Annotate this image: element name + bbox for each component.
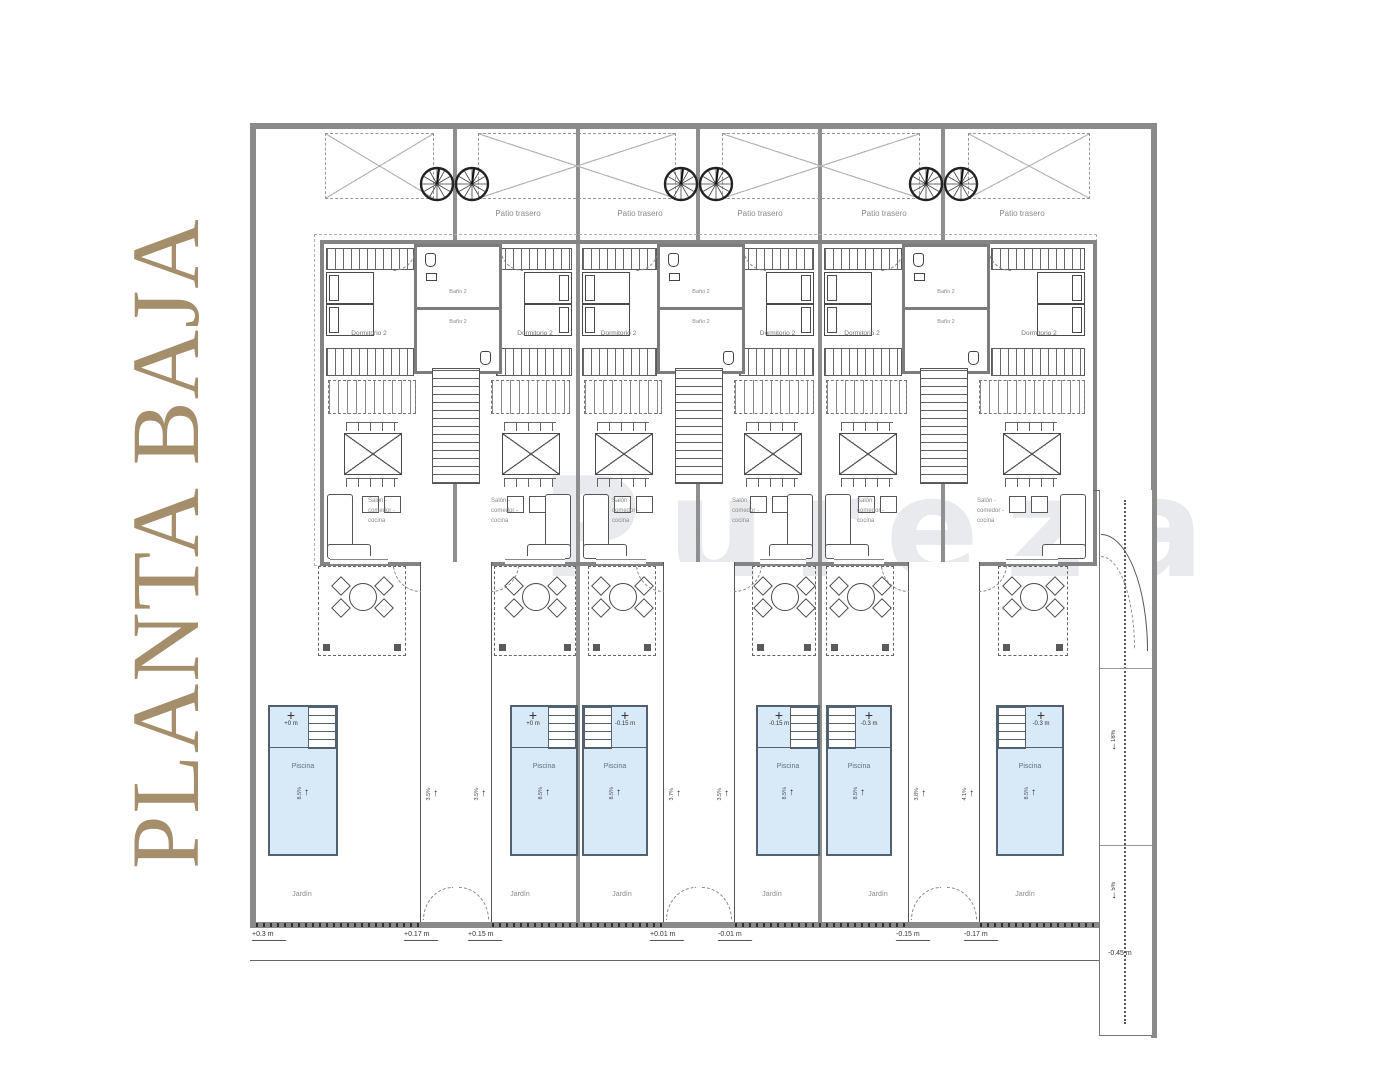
staircase bbox=[920, 368, 968, 484]
level-annotation: -0.15 m bbox=[896, 931, 930, 941]
arrow-up-icon: ↑ bbox=[789, 788, 794, 798]
spiral-stair-icon bbox=[943, 166, 979, 202]
slope-value: 3.8% bbox=[914, 788, 920, 801]
dining-area bbox=[826, 420, 907, 488]
room-label-garden: Jardín bbox=[742, 891, 802, 898]
terrace-chair bbox=[753, 598, 773, 618]
slope-label: 3.5% ↑ bbox=[474, 788, 486, 801]
dining-area bbox=[977, 420, 1085, 488]
pool-level-mark: + -0.3 m bbox=[1024, 709, 1058, 727]
dining-table bbox=[502, 433, 560, 475]
sink-icon bbox=[914, 273, 925, 281]
terrace-table bbox=[609, 583, 637, 611]
toilet-icon bbox=[425, 253, 436, 267]
slope-value: 3.5% bbox=[474, 788, 480, 801]
arrow-up-icon: ↑ bbox=[433, 789, 438, 799]
lightwell-x bbox=[325, 133, 434, 199]
pergola-post bbox=[593, 644, 600, 651]
pergola-post bbox=[499, 644, 506, 651]
terrace-chair bbox=[331, 598, 351, 618]
level-cross-icon: + bbox=[516, 709, 550, 721]
level-cross-icon: + bbox=[852, 709, 886, 721]
pool-elevation: -0.3 m bbox=[852, 721, 886, 727]
pool-elevation: -0.15 m bbox=[608, 721, 642, 727]
spiral-stair-icon bbox=[663, 166, 699, 202]
room-label-patio: Patio trasero bbox=[844, 209, 924, 218]
room-label-garden: Jardín bbox=[995, 891, 1055, 898]
arrow-down-icon: ↓ bbox=[1112, 742, 1117, 751]
room-label-patio: Patio trasero bbox=[720, 209, 800, 218]
chair-row bbox=[597, 422, 649, 431]
arrow-up-icon: ↑ bbox=[304, 788, 309, 798]
room-label-living: Salón - comedor - cocina bbox=[612, 496, 666, 527]
slider-opening bbox=[834, 556, 884, 564]
level-value: +0.01 m bbox=[650, 931, 676, 938]
slope-value: 8.5% bbox=[538, 787, 544, 800]
fence-hatch bbox=[492, 923, 663, 927]
chair-row bbox=[746, 478, 798, 487]
toilet-icon bbox=[913, 253, 924, 267]
chair-row bbox=[504, 478, 556, 487]
level-cross-icon: + bbox=[762, 709, 796, 721]
spiral-stair-icon bbox=[454, 166, 490, 202]
chair-row bbox=[504, 422, 556, 431]
room-label-patio: Patio trasero bbox=[478, 209, 558, 218]
slope-value: 8.5% bbox=[1024, 787, 1030, 800]
living-label-line: cocina bbox=[491, 516, 545, 526]
pool-edge-line bbox=[828, 747, 890, 748]
room-label-bedroom: Dormitorio 2 bbox=[993, 330, 1085, 337]
staircase bbox=[675, 368, 723, 484]
dining-table bbox=[744, 433, 802, 475]
chair-row bbox=[597, 478, 649, 487]
level-annotation: +0.15 m bbox=[468, 931, 502, 941]
staircase bbox=[432, 368, 480, 484]
room-label-living: Salón - comedor - cocina bbox=[732, 496, 786, 527]
bed bbox=[766, 272, 814, 304]
bathroom-core: Baño 2 Baño 2 bbox=[414, 244, 502, 374]
slope-value: 8.5% bbox=[609, 787, 615, 800]
terrace-chair bbox=[591, 576, 611, 596]
level-value: -0.01 m bbox=[718, 931, 742, 938]
bed bbox=[582, 272, 630, 304]
kitchen-counter bbox=[491, 380, 570, 414]
ramp-break-line bbox=[1100, 845, 1152, 846]
room-label-patio: Patio trasero bbox=[982, 209, 1062, 218]
terrace-chair bbox=[829, 598, 849, 618]
kitchen-counter bbox=[826, 380, 907, 414]
room-label-pool: Piscina bbox=[512, 763, 576, 770]
pool-elevation: +0 m bbox=[516, 721, 550, 727]
level-cross-icon: + bbox=[608, 709, 642, 721]
dining-table bbox=[839, 433, 897, 475]
terrace-chair bbox=[796, 598, 816, 618]
pool: + -0.3 m Piscina 8.5% ↑ bbox=[826, 705, 892, 856]
living-label-line: comedor - bbox=[491, 506, 545, 516]
terrace-chair bbox=[374, 576, 394, 596]
terrace bbox=[998, 566, 1068, 656]
ramp-slope-label: 5% ↓ bbox=[1104, 882, 1124, 900]
pool-elevation: +0 m bbox=[274, 721, 308, 727]
bed bbox=[1037, 272, 1085, 304]
slope-label: 8.5% ↑ bbox=[853, 787, 865, 800]
room-label-bath: Baño 2 bbox=[417, 319, 499, 325]
slider-opening bbox=[1006, 556, 1058, 564]
pergola-post bbox=[323, 644, 330, 651]
level-cross-icon: + bbox=[274, 709, 308, 721]
lightwell-x bbox=[722, 133, 920, 199]
wall-north bbox=[250, 123, 1157, 129]
chair-row bbox=[1005, 478, 1057, 487]
kitchen-counter bbox=[979, 380, 1085, 414]
toilet-icon bbox=[480, 351, 491, 365]
spiral-stair-icon bbox=[908, 166, 944, 202]
level-value: -0.17 m bbox=[964, 931, 988, 938]
dining-area bbox=[584, 420, 662, 488]
pergola-post bbox=[1003, 644, 1010, 651]
living-label-line: cocina bbox=[732, 516, 786, 526]
pool-steps bbox=[998, 707, 1026, 749]
gate-swing-arc bbox=[947, 887, 977, 920]
living-label-line: comedor - bbox=[612, 506, 666, 516]
terrace-table bbox=[522, 583, 550, 611]
dining-table bbox=[1003, 433, 1061, 475]
spiral-stair-icon bbox=[419, 166, 455, 202]
arrow-up-icon: ↑ bbox=[724, 789, 729, 799]
slope-label: 8.5% ↑ bbox=[782, 787, 794, 800]
bed bbox=[524, 272, 572, 304]
slope-value: 8.5% bbox=[782, 787, 788, 800]
chair-row bbox=[746, 422, 798, 431]
slope-value: 3.5% bbox=[717, 788, 723, 801]
level-value: +0.15 m bbox=[468, 931, 494, 938]
terrace-chair bbox=[331, 576, 351, 596]
room-label-pool: Piscina bbox=[998, 763, 1062, 770]
room-label-bath: Baño 2 bbox=[417, 289, 499, 295]
terrace-chair bbox=[872, 598, 892, 618]
pool-level-mark: + +0 m bbox=[274, 709, 308, 727]
gate-swing-arc bbox=[459, 887, 489, 920]
terrace-chair bbox=[547, 576, 567, 596]
pool: + -0.3 m Piscina 8.5% ↑ bbox=[996, 705, 1064, 856]
living-label-line: Salón - bbox=[977, 496, 1031, 506]
sink-icon bbox=[426, 273, 437, 281]
living-label-line: comedor - bbox=[732, 506, 786, 516]
level-annotation: +0.3 m bbox=[252, 931, 286, 941]
slope-value: 3.5% bbox=[426, 788, 432, 801]
level-annotation: -0.17 m bbox=[964, 931, 998, 941]
terrace-table bbox=[349, 583, 377, 611]
living-label-line: Salón - bbox=[612, 496, 666, 506]
terrace-chair bbox=[796, 576, 816, 596]
gate-swing-arc bbox=[911, 887, 941, 920]
room-label-bedroom: Dormitorio 2 bbox=[824, 330, 900, 337]
slope-label: 4.1% ↑ bbox=[962, 788, 974, 801]
slider-opening bbox=[760, 556, 806, 564]
living-label-line: Salón - bbox=[857, 496, 911, 506]
slope-label: 8.5% ↑ bbox=[538, 787, 550, 800]
slope-label: 3.5% ↑ bbox=[426, 788, 438, 801]
pool-level-mark: + -0.15 m bbox=[762, 709, 796, 727]
bathroom-core: Baño 2 Baño 2 bbox=[902, 244, 990, 374]
room-label-garden: Jardín bbox=[490, 891, 550, 898]
pool-steps bbox=[308, 707, 336, 749]
terrace bbox=[826, 566, 894, 656]
fence-hatch bbox=[256, 923, 420, 927]
wall-west bbox=[250, 123, 256, 928]
pool-steps bbox=[548, 707, 576, 749]
dining-table bbox=[595, 433, 653, 475]
pergola-post bbox=[564, 644, 571, 651]
arrow-up-icon: ↑ bbox=[616, 788, 621, 798]
room-label-pool: Piscina bbox=[270, 763, 336, 770]
room-label-bedroom: Dormitorio 2 bbox=[741, 330, 814, 337]
closet bbox=[824, 348, 902, 376]
pergola-post bbox=[644, 644, 651, 651]
ramp-slope-label: 18% ↓ bbox=[1104, 730, 1124, 751]
terrace-chair bbox=[374, 598, 394, 618]
terrace-chair bbox=[1002, 598, 1022, 618]
bed bbox=[824, 272, 872, 304]
arrow-up-icon: ↑ bbox=[545, 788, 550, 798]
pergola-post bbox=[804, 644, 811, 651]
floor-plan-sheet: PLANTA BAJA Pureza bbox=[0, 0, 1398, 1080]
lightwell-x bbox=[968, 133, 1090, 199]
terrace-table bbox=[847, 583, 875, 611]
slope-value: 4.1% bbox=[962, 788, 968, 801]
chair-row bbox=[346, 422, 398, 431]
pergola-post bbox=[1056, 644, 1063, 651]
terrace-chair bbox=[547, 598, 567, 618]
gate-swing-arc bbox=[702, 887, 732, 920]
pergola-post bbox=[882, 644, 889, 651]
room-label-living: Salón - comedor - cocina bbox=[857, 496, 911, 527]
core-divider bbox=[417, 307, 499, 310]
chair-row bbox=[841, 422, 893, 431]
terrace bbox=[752, 566, 816, 656]
sink-icon bbox=[669, 273, 680, 281]
armchair bbox=[1031, 496, 1048, 513]
lightwell-x bbox=[478, 133, 676, 199]
level-value: -0.15 m bbox=[896, 931, 920, 938]
slope-label: 3.7% ↑ bbox=[669, 788, 681, 801]
terrace-chair bbox=[591, 598, 611, 618]
terrace bbox=[318, 566, 406, 656]
slope-value: 3.7% bbox=[669, 788, 675, 801]
living-label-line: cocina bbox=[857, 516, 911, 526]
arrow-down-icon: ↓ bbox=[1112, 891, 1117, 900]
dining-table bbox=[344, 433, 402, 475]
core-divider bbox=[905, 307, 987, 310]
pool-elevation: -0.3 m bbox=[1024, 721, 1058, 727]
toilet-icon bbox=[723, 351, 734, 365]
room-label-bath: Baño 2 bbox=[905, 319, 987, 325]
room-label-bath: Baño 2 bbox=[660, 289, 742, 295]
chair-row bbox=[346, 478, 398, 487]
pool-edge-line bbox=[758, 747, 818, 748]
room-label-living: Salón - comedor - cocina bbox=[368, 496, 422, 527]
pergola-post bbox=[394, 644, 401, 651]
room-label-patio: Patio trasero bbox=[600, 209, 680, 218]
closet bbox=[496, 348, 572, 376]
living-label-line: Salón - bbox=[491, 496, 545, 506]
arrow-up-icon: ↑ bbox=[481, 789, 486, 799]
room-label-garden: Jardín bbox=[592, 891, 652, 898]
living-label-line: comedor - bbox=[977, 506, 1031, 516]
room-label-bedroom: Dormitorio 2 bbox=[326, 330, 412, 337]
room-label-garden: Jardín bbox=[848, 891, 908, 898]
level-value: +0.3 m bbox=[252, 931, 274, 938]
arrow-up-icon: ↑ bbox=[676, 789, 681, 799]
site-boundary-line bbox=[250, 960, 1103, 961]
living-label-line: Salón - bbox=[732, 496, 786, 506]
toilet-icon bbox=[968, 351, 979, 365]
ramp-break-line bbox=[1100, 668, 1152, 669]
bathroom-core: Baño 2 Baño 2 bbox=[657, 244, 745, 374]
room-label-bedroom: Dormitorio 2 bbox=[582, 330, 655, 337]
slider-opening bbox=[505, 556, 565, 564]
terrace-chair bbox=[1002, 576, 1022, 596]
room-label-bedroom: Dormitorio 2 bbox=[498, 330, 572, 337]
chair-row bbox=[841, 478, 893, 487]
slope-label: 3.8% ↑ bbox=[914, 788, 926, 801]
arrow-up-icon: ↑ bbox=[969, 789, 974, 799]
terrace-chair bbox=[1045, 598, 1065, 618]
level-annotation: +0.01 m bbox=[650, 931, 684, 941]
slider-opening bbox=[330, 556, 388, 564]
slope-label: 8.5% ↑ bbox=[609, 787, 621, 800]
driveway: 3.5% ↑ 3.5% ↑ bbox=[420, 562, 492, 922]
slope-value: 8.5% bbox=[853, 787, 859, 800]
slider-opening bbox=[596, 556, 646, 564]
gate-swing-arc bbox=[423, 887, 453, 920]
level-annotation: +0.17 m bbox=[404, 931, 438, 941]
living-label-line: comedor - bbox=[857, 506, 911, 516]
kitchen-counter bbox=[734, 380, 814, 414]
living-label-line: comedor - bbox=[368, 506, 422, 516]
closet bbox=[739, 348, 814, 376]
slope-value: 18% bbox=[1111, 730, 1117, 742]
room-label-living: Salón - comedor - cocina bbox=[491, 496, 545, 527]
living-label-line: cocina bbox=[612, 516, 666, 526]
pergola-post bbox=[757, 644, 764, 651]
slope-value: 8.5% bbox=[297, 787, 303, 800]
room-label-pool: Piscina bbox=[584, 763, 646, 770]
dining-area bbox=[328, 420, 416, 488]
pool-level-mark: + -0.3 m bbox=[852, 709, 886, 727]
level-value: +0.17 m bbox=[404, 931, 430, 938]
spiral-stair-icon bbox=[698, 166, 734, 202]
room-label-bath: Baño 2 bbox=[660, 319, 742, 325]
closet bbox=[326, 348, 414, 376]
pool-level-mark: + +0 m bbox=[516, 709, 550, 727]
arrow-up-icon: ↑ bbox=[921, 789, 926, 799]
pool-edge-line bbox=[584, 747, 646, 748]
room-label-pool: Piscina bbox=[758, 763, 818, 770]
slope-value: 5% bbox=[1111, 882, 1117, 891]
pool-edge-line bbox=[998, 747, 1062, 748]
kitchen-counter bbox=[584, 380, 662, 414]
fence-hatch bbox=[980, 923, 1095, 927]
closet bbox=[991, 348, 1085, 376]
pool-elevation: -0.15 m bbox=[762, 721, 796, 727]
arrow-up-icon: ↑ bbox=[860, 788, 865, 798]
page-title: PLANTA BAJA bbox=[118, 128, 238, 958]
pool-level-mark: + -0.15 m bbox=[608, 709, 642, 727]
driveway: 3.8% ↑ 4.1% ↑ bbox=[908, 562, 980, 922]
arrow-up-icon: ↑ bbox=[1031, 788, 1036, 798]
room-label-living: Salón - comedor - cocina bbox=[977, 496, 1031, 527]
room-label-bath: Baño 2 bbox=[905, 289, 987, 295]
fence-hatch bbox=[735, 923, 908, 927]
closet bbox=[582, 348, 657, 376]
terrace-chair bbox=[829, 576, 849, 596]
room-label-garden: Jardín bbox=[272, 891, 332, 898]
living-label-line: Salón - bbox=[368, 496, 422, 506]
dining-area bbox=[489, 420, 570, 488]
living-label-line: cocina bbox=[368, 516, 422, 526]
terrace-chair bbox=[504, 598, 524, 618]
dining-area bbox=[732, 420, 812, 488]
terrace-table bbox=[1020, 583, 1048, 611]
kitchen-counter bbox=[328, 380, 416, 414]
gate-swing-arc bbox=[666, 887, 696, 920]
pool: + -0.15 m Piscina 8.5% ↑ bbox=[582, 705, 648, 856]
slope-label: 8.5% ↑ bbox=[1024, 787, 1036, 800]
level-annotation: -0.45 m bbox=[1108, 950, 1132, 957]
living-label-line: cocina bbox=[977, 516, 1031, 526]
core-divider bbox=[660, 307, 742, 310]
room-label-pool: Piscina bbox=[828, 763, 890, 770]
terrace-table bbox=[771, 583, 799, 611]
terrace-chair bbox=[1045, 576, 1065, 596]
pergola-post bbox=[831, 644, 838, 651]
chair-row bbox=[1005, 422, 1057, 431]
toilet-icon bbox=[668, 253, 679, 267]
slope-label: 3.5% ↑ bbox=[717, 788, 729, 801]
pool-edge-line bbox=[512, 747, 576, 748]
pool: + +0 m Piscina 8.5% ↑ bbox=[268, 705, 338, 856]
driveway: 3.7% ↑ 3.5% ↑ bbox=[663, 562, 735, 922]
bed bbox=[326, 272, 374, 304]
terrace-chair bbox=[634, 598, 654, 618]
slope-label: 8.5% ↑ bbox=[297, 787, 309, 800]
level-annotation: -0.01 m bbox=[718, 931, 752, 941]
pool: + -0.15 m Piscina 8.5% ↑ bbox=[756, 705, 820, 856]
pool: + +0 m Piscina 8.5% ↑ bbox=[510, 705, 578, 856]
level-cross-icon: + bbox=[1024, 709, 1058, 721]
pool-edge-line bbox=[270, 747, 336, 748]
